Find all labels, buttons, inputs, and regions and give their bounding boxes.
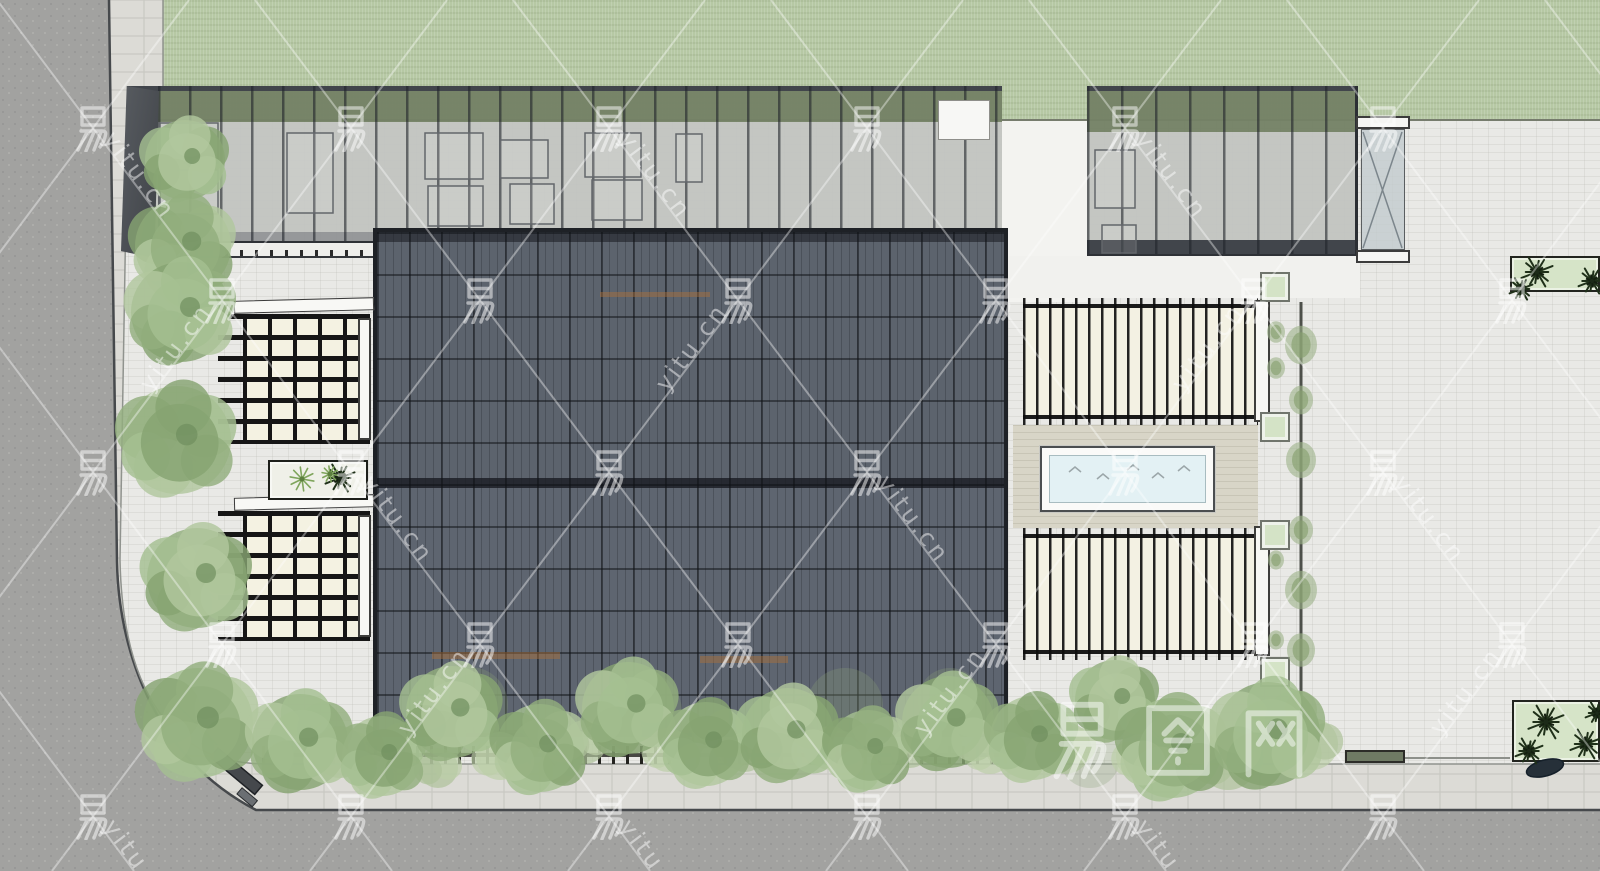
canopy-skylight-void [938, 100, 990, 140]
main-glass-roof [373, 228, 1008, 737]
reflecting-pool [1040, 446, 1215, 512]
end-structure-hip-roof [1361, 129, 1405, 250]
south-entry-vestibule [692, 728, 720, 748]
slat-grid [1023, 528, 1258, 660]
pergola-west-2-grid [243, 511, 370, 641]
south-hedge-fence [262, 746, 1012, 764]
end-structure-rail-bottom [1356, 250, 1410, 263]
square-planter [1260, 412, 1290, 442]
square-planter [1260, 520, 1290, 550]
end-structure-rail-top [1356, 116, 1410, 129]
planter-southeast [1512, 700, 1600, 762]
pool-water [1049, 455, 1206, 503]
pergola-west-2-beam-ends [218, 511, 245, 641]
slat-pergola-east-2 [1023, 528, 1258, 660]
square-planter [1260, 272, 1290, 302]
courtyard-east [1008, 256, 1360, 298]
pergola-west-1-grid [243, 314, 370, 444]
slat-grid [1023, 298, 1258, 425]
south-hedge-wall-segment [1345, 750, 1405, 763]
pergola-west-1-connector [358, 318, 371, 440]
site-plan-stage: yitu.cnyitu.cnyitu.cnyitu.cnyitu.cnyitu.… [0, 0, 1600, 871]
post-ticks [150, 250, 373, 256]
planter-between-pergolas [268, 460, 368, 500]
canopy-edge-posts [150, 243, 373, 258]
pergola-east-1-end-bar [1254, 300, 1270, 422]
planter-northeast [1510, 256, 1600, 292]
canopy-west-gable [121, 86, 159, 258]
glass-canopy-west [127, 86, 1002, 243]
pergola-west-1-beam-ends [218, 314, 245, 444]
slat-pergola-east-1 [1023, 298, 1258, 425]
pergola-west-2-connector [358, 515, 371, 637]
glass-canopy-east [1087, 86, 1358, 256]
square-planter [1260, 657, 1290, 687]
